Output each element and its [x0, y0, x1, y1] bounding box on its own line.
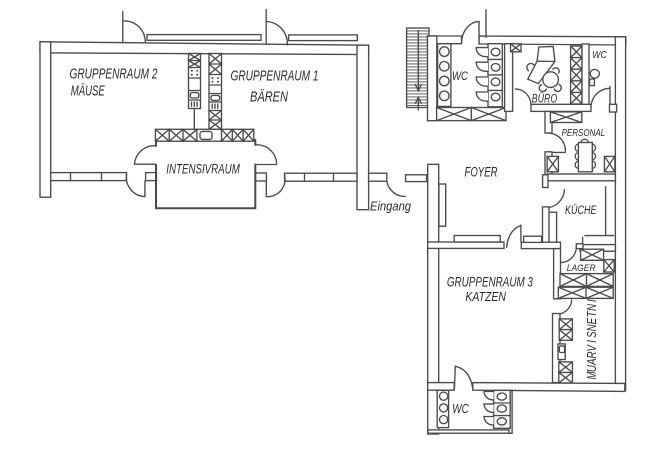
svg-text:LAGER: LAGER	[567, 263, 596, 274]
svg-text:GRUPPENRAUM 2: GRUPPENRAUM 2	[70, 67, 158, 83]
svg-text:I: I	[586, 299, 599, 302]
svg-text:Eingang: Eingang	[370, 199, 412, 214]
svg-text:BÜRO: BÜRO	[532, 92, 558, 106]
svg-text:GRUPPENRAUM 3: GRUPPENRAUM 3	[447, 274, 533, 290]
svg-text:T: T	[586, 310, 599, 317]
svg-text:FOYER: FOYER	[465, 164, 498, 180]
svg-text:A: A	[586, 359, 599, 366]
svg-text:KATZEN: KATZEN	[465, 289, 506, 304]
svg-text:R: R	[586, 351, 599, 358]
svg-text:M: M	[586, 371, 599, 380]
svg-text:N: N	[586, 303, 599, 311]
svg-text:N: N	[586, 324, 599, 332]
svg-text:U: U	[586, 364, 599, 372]
svg-text:WC: WC	[452, 69, 468, 83]
svg-text:BÄREN: BÄREN	[250, 89, 288, 106]
svg-text:INTENSIVRAUM: INTENSIVRAUM	[166, 162, 240, 177]
svg-text:S: S	[586, 331, 599, 338]
svg-text:WC: WC	[452, 402, 469, 416]
svg-text:PERSONAL: PERSONAL	[562, 128, 606, 139]
svg-text:KÜCHE: KÜCHE	[565, 205, 597, 217]
svg-text:GRUPPENRAUM 1: GRUPPENRAUM 1	[231, 69, 319, 85]
svg-text:I: I	[586, 340, 599, 343]
svg-text:MÄUSE: MÄUSE	[71, 83, 105, 100]
svg-text:WC: WC	[592, 49, 607, 61]
svg-text:V: V	[586, 344, 599, 352]
svg-text:E: E	[586, 317, 599, 324]
